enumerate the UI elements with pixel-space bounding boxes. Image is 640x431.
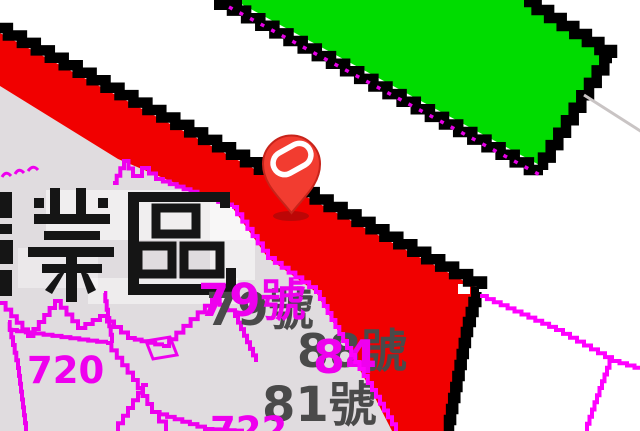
partial-character-glyph <box>0 192 13 296</box>
label-parcel-722: 722 <box>210 409 287 431</box>
label-address-79-overlay: 79號 <box>198 274 306 327</box>
map-viewport[interactable]: 業區 79號 79號 88號 84 81號 720 722 <box>0 0 640 431</box>
map-canvas[interactable]: 業區 79號 79號 88號 84 81號 720 722 <box>0 0 640 431</box>
label-parcel-720: 720 <box>27 349 104 392</box>
